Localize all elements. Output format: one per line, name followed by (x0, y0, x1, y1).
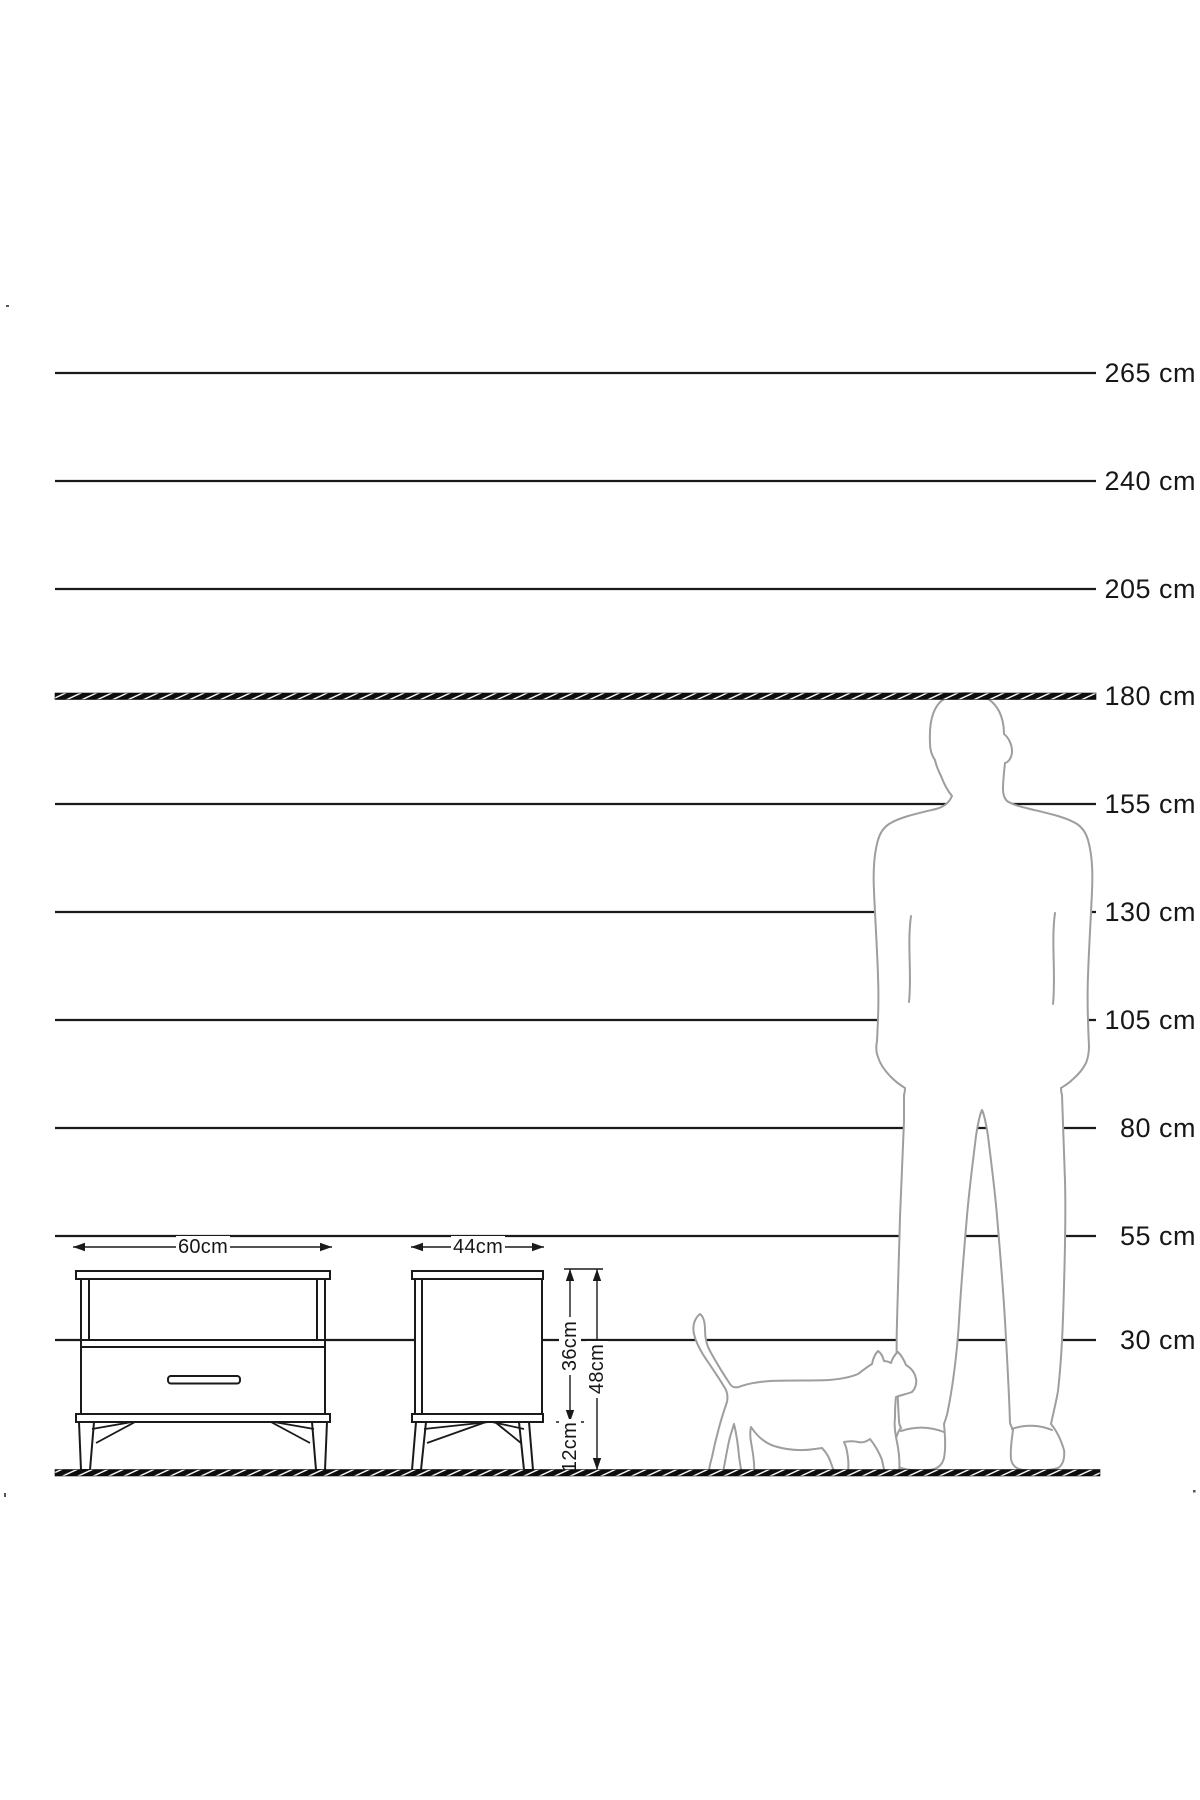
ground-line (55, 1470, 1100, 1477)
ruler-label-80cm: 80 cm (1120, 1113, 1196, 1143)
cat-outline (693, 1314, 916, 1472)
man-outline (874, 693, 1093, 1471)
arrow-left-icon (411, 1243, 423, 1251)
side-carcass (415, 1279, 542, 1414)
ruler-label-205cm: 205 cm (1104, 574, 1196, 604)
front-bottom-board (76, 1414, 330, 1422)
cat-silhouette (693, 1314, 916, 1472)
front-width-label: 60cm (178, 1236, 228, 1258)
front-leg-left (79, 1422, 94, 1470)
upper-height-label: 36cm (559, 1321, 581, 1371)
ruler-line-180cm-hatched (55, 693, 1096, 700)
side-leg-brace (424, 1422, 489, 1429)
dimension-diagram: 60cm 44cm 36cm 48cm 12cm 265 cm 240 cm 2… (0, 0, 1200, 1800)
nightstand-side-view (412, 1271, 543, 1470)
ruler-label-155cm: 155 cm (1104, 789, 1196, 819)
man-silhouette (874, 693, 1093, 1471)
ruler-label-55cm: 55 cm (1120, 1221, 1196, 1251)
side-top-board (412, 1271, 543, 1279)
leg-height-label: 12cm (559, 1422, 581, 1472)
ruler-labels: 265 cm 240 cm 205 cm 180 cm 155 cm 130 c… (1104, 358, 1196, 1355)
total-height-label: 48cm (586, 1344, 608, 1394)
ruler-label-265cm: 265 cm (1104, 358, 1196, 388)
front-leg-right (312, 1422, 327, 1470)
drawer-handle (168, 1376, 240, 1384)
ruler-label-240cm: 240 cm (1104, 466, 1196, 496)
ruler-label-30cm: 30 cm (1120, 1325, 1196, 1355)
nightstand-front-view (76, 1271, 330, 1470)
front-leg-brace (92, 1422, 132, 1429)
ruler-label-105cm: 105 cm (1104, 1005, 1196, 1035)
arrow-up-icon (593, 1269, 601, 1281)
side-leg-left (412, 1422, 426, 1470)
arrow-up-icon (566, 1269, 574, 1281)
front-leg-brace (274, 1422, 314, 1429)
front-top-board (76, 1271, 330, 1279)
arrow-right-icon (532, 1243, 544, 1251)
ruler-label-130cm: 130 cm (1104, 897, 1196, 927)
side-depth-label: 44cm (453, 1236, 503, 1258)
side-bottom-board (412, 1414, 543, 1422)
arrow-down-icon (593, 1458, 601, 1470)
arrow-right-icon (320, 1243, 332, 1251)
arrow-left-icon (73, 1243, 85, 1251)
ruler-label-180cm: 180 cm (1104, 681, 1196, 711)
